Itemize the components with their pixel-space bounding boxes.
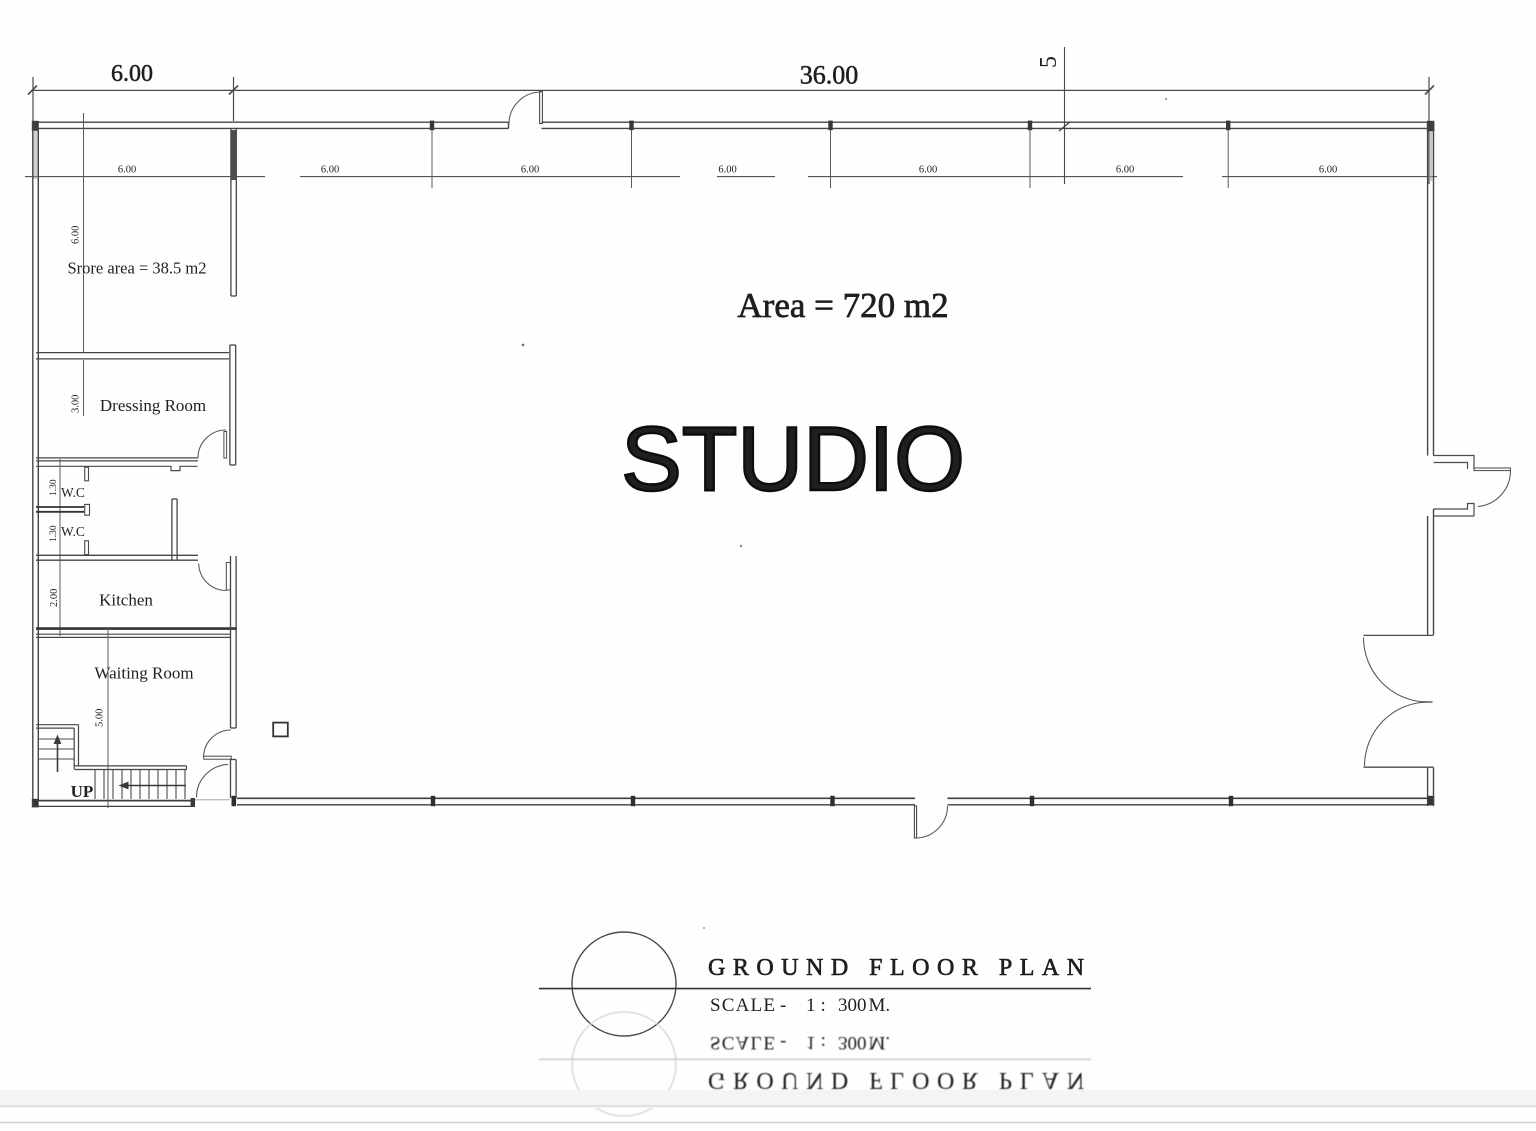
svg-text:6.00: 6.00	[919, 165, 937, 176]
svg-text:2.00: 2.00	[49, 589, 60, 607]
svg-text:6.00: 6.00	[1319, 165, 1337, 176]
svg-text:6.00: 6.00	[1116, 165, 1134, 176]
svg-text:6.00: 6.00	[521, 165, 539, 176]
svg-text:36.00: 36.00	[800, 61, 859, 90]
svg-text:1.30: 1.30	[49, 479, 59, 496]
svg-text:Waiting Room: Waiting Room	[94, 664, 193, 683]
svg-text:GROUND FLOOR PLAN: GROUND FLOOR PLAN	[708, 1067, 1092, 1093]
svg-text:6.00: 6.00	[718, 165, 736, 176]
svg-text:UP: UP	[71, 782, 94, 801]
svg-text:GROUND FLOOR PLAN: GROUND FLOOR PLAN	[708, 955, 1092, 981]
svg-text:Kitchen: Kitchen	[99, 591, 153, 610]
svg-text:5.00: 5.00	[95, 709, 106, 727]
svg-text:5: 5	[1036, 56, 1062, 68]
svg-text:W.C: W.C	[61, 524, 85, 539]
svg-text:3.00: 3.00	[71, 395, 82, 413]
svg-text:6.00: 6.00	[118, 165, 136, 176]
svg-text:6.00: 6.00	[321, 165, 339, 176]
svg-text:Area = 720 m2: Area = 720 m2	[737, 286, 948, 325]
svg-text:Srore area = 38.5 m2: Srore area = 38.5 m2	[68, 259, 207, 278]
svg-text:6.00: 6.00	[111, 61, 153, 87]
svg-text:Dressing Room: Dressing Room	[100, 396, 206, 415]
svg-text:W.C: W.C	[61, 485, 85, 500]
svg-text:6.00: 6.00	[71, 226, 82, 244]
svg-text:STUDIO: STUDIO	[621, 409, 965, 510]
svg-text:1.30: 1.30	[49, 525, 59, 542]
